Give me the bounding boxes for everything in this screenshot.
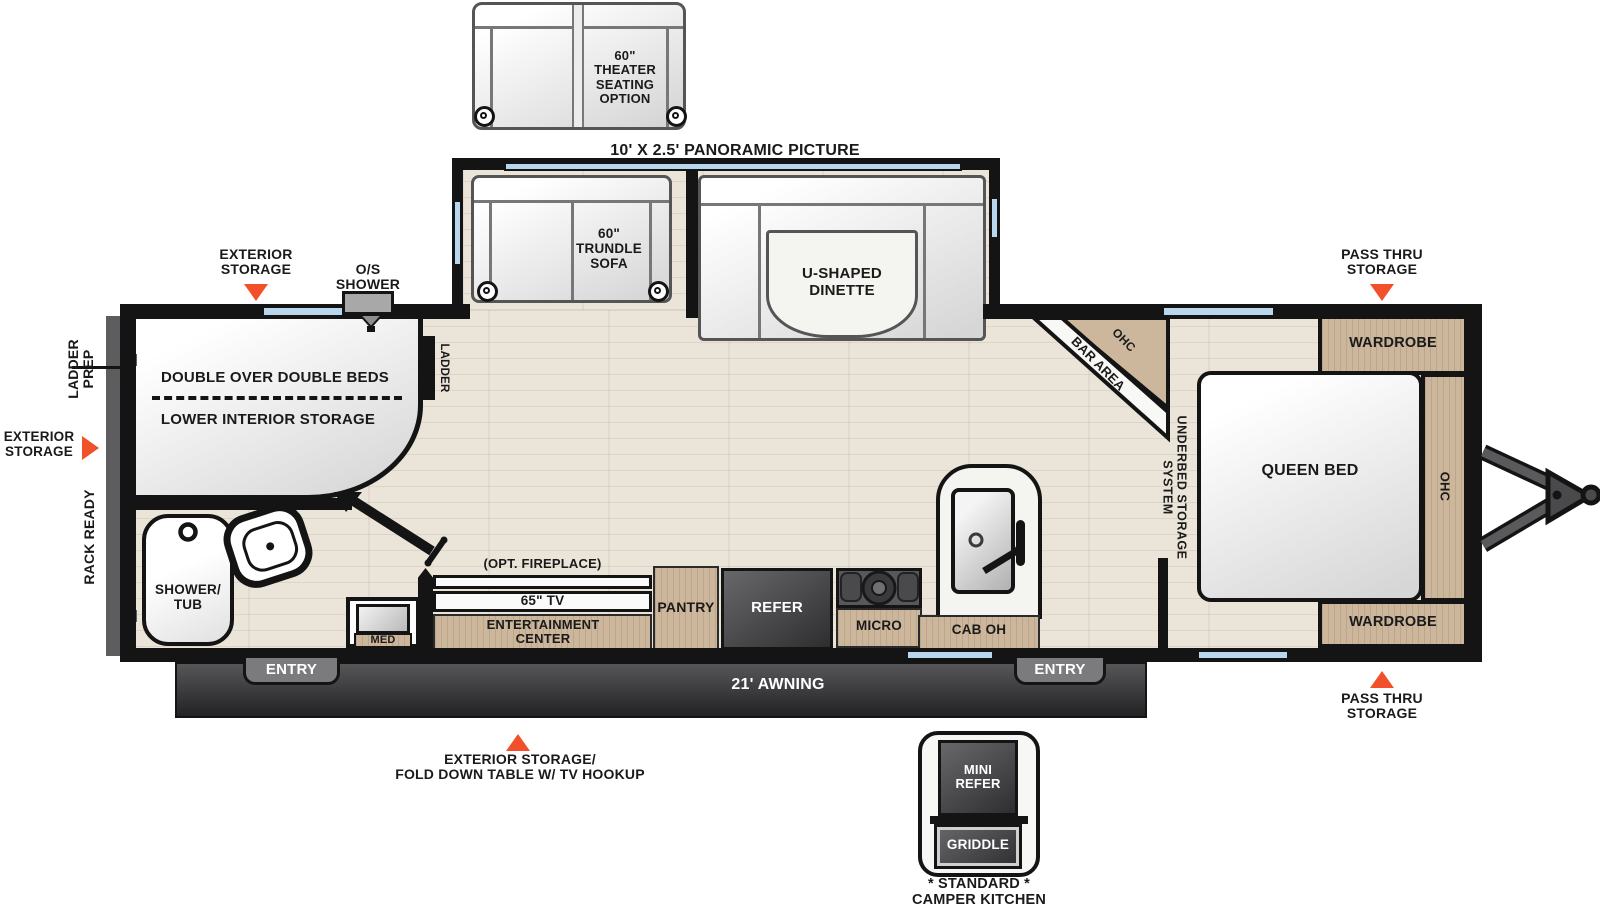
exterior-storage-top-label: EXTERIOR STORAGE [196,247,316,278]
opt-fireplace-label: (OPT. FIREPLACE) [440,557,645,571]
entry-door-left: ENTRY [243,655,340,685]
underbed-storage-label: UNDERBED STORAGE SYSTEM [1175,388,1188,588]
stove [836,568,922,608]
fireplace-band [433,575,652,589]
theater-recliner-knob-right [666,106,687,127]
shower-tub [142,514,234,646]
trundle-sofa-label: 60" TRUNDLE SOFA [549,227,669,272]
rack-ready-label: RACK READY [82,482,98,592]
med-label: MED [354,634,412,646]
beds-dashed-divider [152,396,402,400]
awning-label: 21' AWNING [688,676,868,694]
queen-bed [1197,371,1423,602]
exterior-storage-left-label: EXTERIOR STORAGE [0,430,78,460]
pass-thru-top-label: PASS THRU STORAGE [1322,247,1442,278]
underbed-wall-upper [1158,330,1168,420]
camper-kitchen-divider [930,816,1028,824]
sofa-recliner-knob-left [477,281,498,302]
entry-right-label: ENTRY [1034,662,1085,679]
slideout-window-left [453,200,462,266]
refer-label: REFER [721,600,833,617]
exterior-storage-left-arrow-icon [82,436,99,460]
main-wall-right [1466,304,1482,662]
pass-thru-top-arrow-icon [1370,284,1394,301]
slideout-section-divider [686,163,698,318]
entertainment-center-label: ENTERTAINMENT CENTER [448,618,638,647]
pantry-label: PANTRY [650,600,722,615]
exterior-storage-bottom-label: EXTERIOR STORAGE/ FOLD DOWN TABLE W/ TV … [380,752,660,783]
griddle-label: GRIDDLE [934,838,1022,853]
window-bottom-kitchen [906,650,994,660]
queen-bed-label: QUEEN BED [1210,462,1410,480]
double-beds-label: DOUBLE OVER DOUBLE BEDS [145,370,405,387]
dinette-left-bench-line [758,205,761,338]
med-sink [356,604,410,634]
cab-oh-label: CAB OH [918,623,1040,638]
exterior-storage-bottom-arrow-icon [506,734,530,751]
ladder-bar [423,336,435,400]
mini-refer-label: MINI REFER [938,763,1018,792]
micro-label: MICRO [836,619,922,634]
floorplan-canvas: 60" THEATER SEATING OPTION 10' X 2.5' PA… [0,0,1600,909]
main-wall-left [120,304,136,662]
entry-left-label: ENTRY [266,662,317,679]
pass-thru-bottom-label: PASS THRU STORAGE [1322,691,1442,722]
shower-tub-label: SHOWER/ TUB [150,583,226,613]
slideout-window-right [990,197,999,239]
bathroom-wall [130,498,352,510]
os-shower-fixture [342,291,394,315]
double-over-double-beds [136,318,423,500]
ent-wall-stub [418,568,433,648]
dinette-back-line [701,203,983,206]
wardrobe-bottom-label: WARDROBE [1318,615,1468,631]
dinette-label: U-SHAPED DINETTE [772,266,912,299]
sofa-recliner-knob-right [648,281,669,302]
os-shower-label: O/S SHOWER [318,262,418,293]
bedroom-ohc-label: OHC [1439,465,1452,509]
dinette-right-bench-line [923,205,926,338]
trailer-hitch [1483,452,1599,545]
exterior-storage-top-arrow-icon [244,284,268,301]
pass-thru-bottom-arrow-icon [1370,671,1394,688]
camper-kitchen-caption: * STANDARD * CAMPER KITCHEN [898,877,1060,909]
window-top-front-bed [262,306,352,317]
entry-door-right: ENTRY [1014,655,1106,685]
panoramic-picture-label: 10' X 2.5' PANORAMIC PICTURE [560,142,910,160]
kitchen-sink [951,488,1015,594]
tv-label: 65" TV [433,594,652,609]
theater-seating-label: 60" THEATER SEATING OPTION [560,49,690,106]
wardrobe-top-label: WARDROBE [1318,336,1468,352]
ladder-prep-label: LADDER PREP [66,333,98,405]
lower-storage-label: LOWER INTERIOR STORAGE [148,412,388,429]
theater-recliner-knob-left [474,106,495,127]
ladder-label: LADDER [438,336,450,400]
window-bottom-bedroom [1197,650,1289,660]
slideout-window-top [504,162,962,171]
window-top-bedroom [1162,306,1275,317]
underbed-wall-lower [1158,558,1168,650]
